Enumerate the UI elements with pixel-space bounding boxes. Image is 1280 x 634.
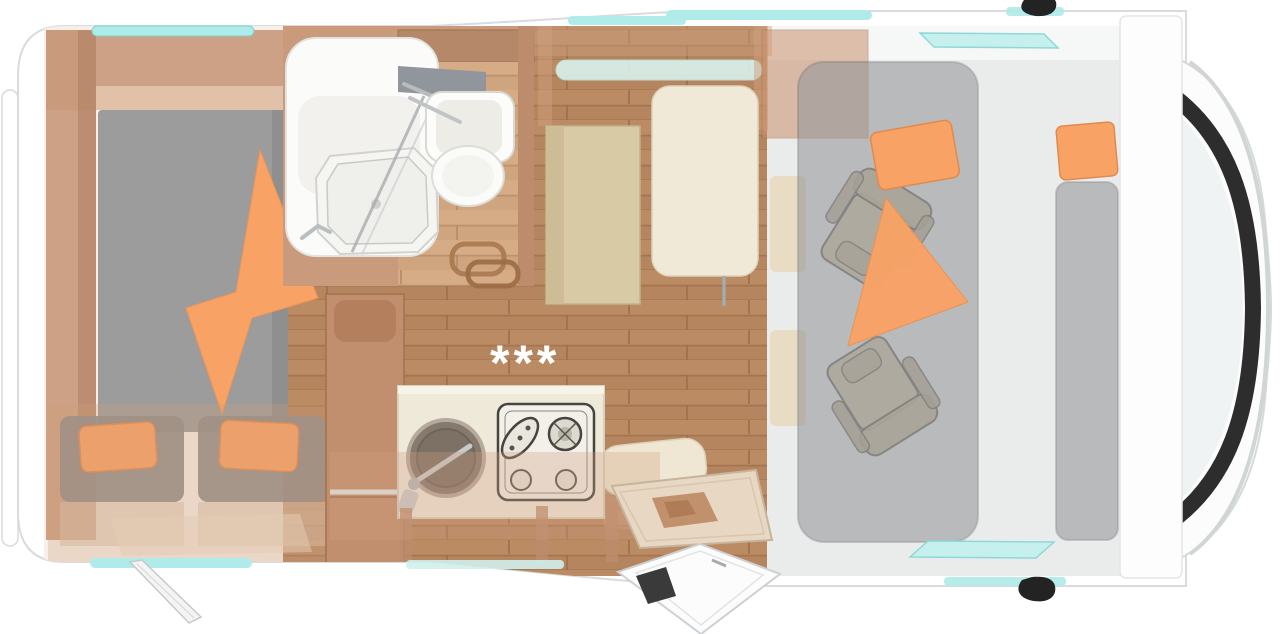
overhead-locker-dinette: [534, 26, 772, 56]
bed-frame-seam: [78, 30, 96, 430]
dropbed-pillow-right: [1056, 122, 1118, 181]
stars-label: ***: [490, 335, 560, 391]
dropbed-front-section: [1056, 182, 1118, 540]
overhead-locker-kitchen: [330, 452, 660, 540]
kitchen-counter-edge: [398, 386, 604, 394]
interior: ***: [44, 26, 1123, 576]
skylight-mid-bottom: [406, 560, 564, 569]
rear-bumper: [2, 90, 18, 546]
window-strip-top: [666, 10, 872, 20]
stove-dot: [510, 446, 515, 451]
bed-head-shelf: [94, 86, 290, 110]
dinette-pillar-left: [538, 26, 552, 126]
stove-dot: [526, 426, 531, 431]
awning-strut-line: [137, 564, 194, 618]
cab-window-bottom: [910, 541, 1054, 558]
motorhome-floorplan: ***: [0, 0, 1280, 634]
dinette-table: [652, 86, 758, 276]
side-mirror-bottom: [1018, 577, 1055, 602]
dinette-side-window: [556, 60, 762, 80]
stove-dot: [518, 436, 523, 441]
cab-roof-pillar: [1120, 16, 1182, 578]
cab-window-top: [920, 33, 1058, 48]
dinette-bench-backrest: [546, 126, 564, 304]
floorplan-canvas: ***: [0, 0, 1280, 634]
overhead-locker-rear: [48, 404, 366, 564]
toilet-seat: [442, 155, 494, 197]
skylight-rear-top: [92, 26, 254, 36]
bathroom-wall-right: [518, 26, 534, 286]
wardrobe-top: [334, 300, 396, 342]
skylight-rear-bottom: [90, 558, 252, 568]
